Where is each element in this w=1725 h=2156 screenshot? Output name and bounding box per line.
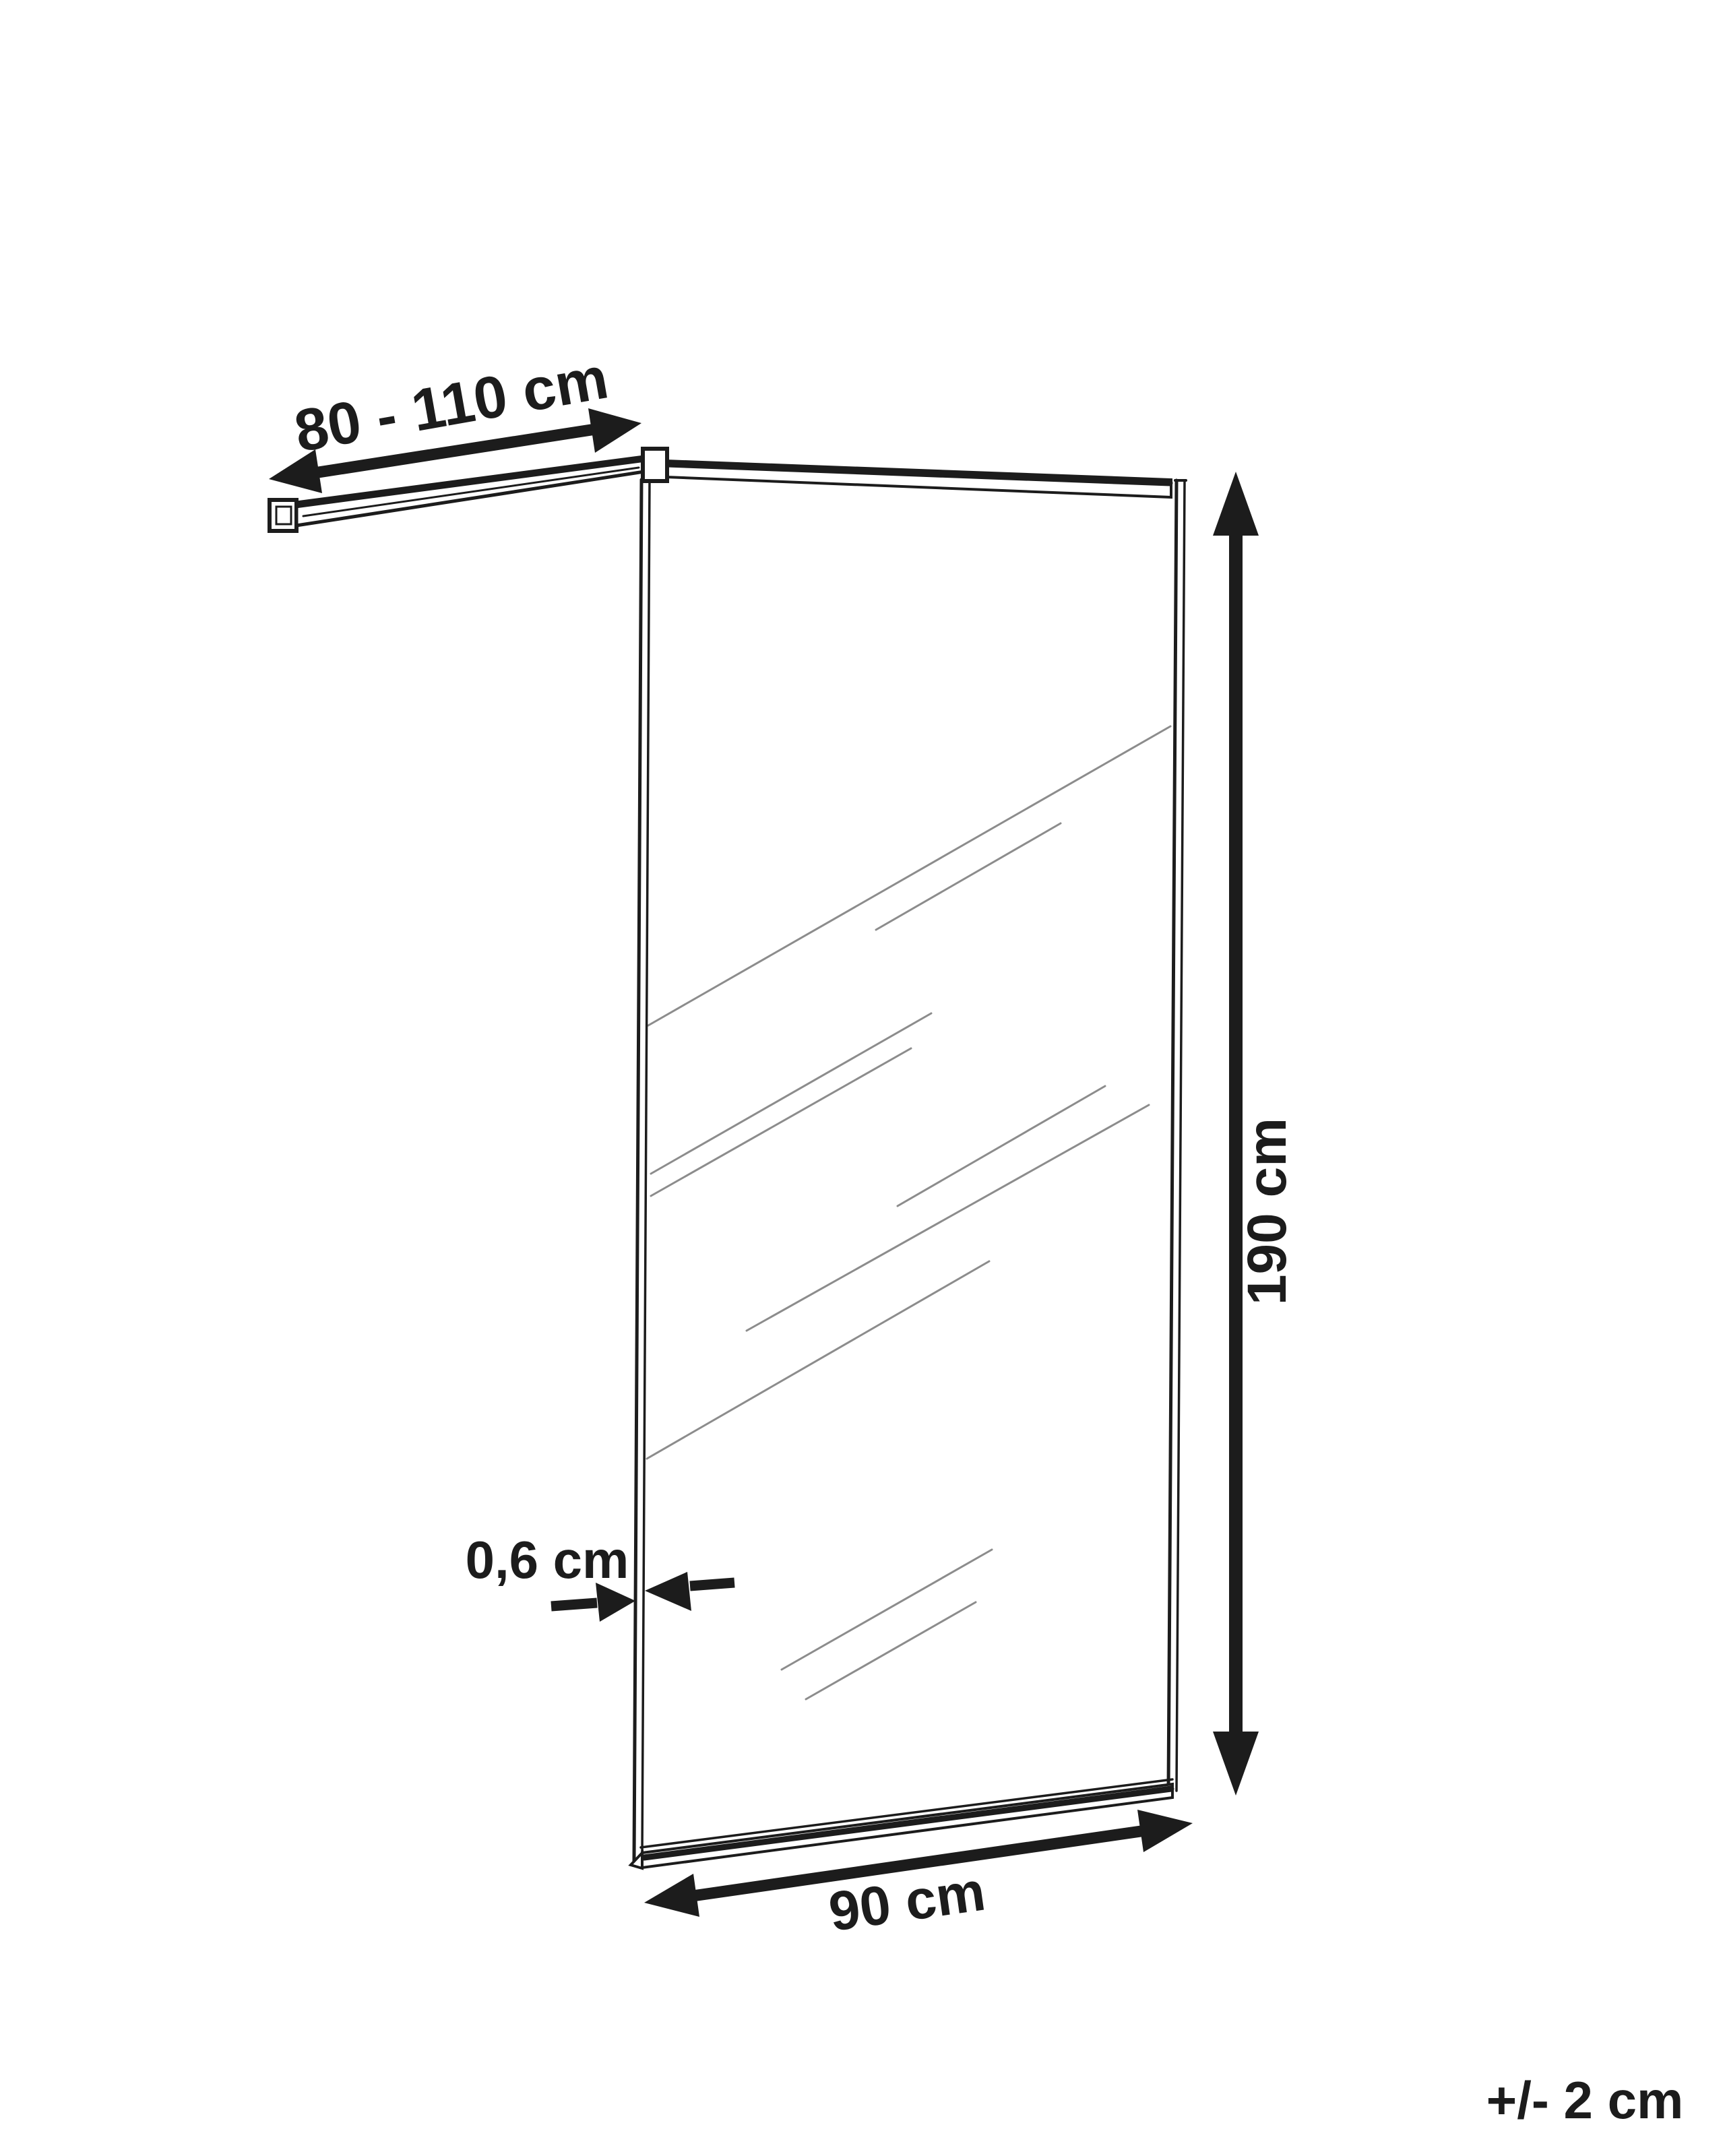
glass-edge-line [1177,480,1185,1791]
height-label: 190 cm [1236,1118,1298,1305]
glass-streak-line [648,726,1170,1025]
shower-screen-diagram: 80 - 110 cm 190 cm 0,6 cm 90 cm +/- 2 cm [0,0,1725,2156]
diagram-canvas: 80 - 110 cm 190 cm 0,6 cm 90 cm +/- 2 cm [0,0,1725,2156]
glass-edge-line [634,480,641,1861]
glass-streak-line [747,1105,1149,1331]
wall-bracket-outer [270,500,296,531]
arrowhead-up-icon [1213,472,1259,536]
glass-right-edge [1168,480,1186,1791]
glass-clamp [643,449,667,481]
glass-edge-line [642,480,650,1854]
bottom-rail [631,1779,1172,1868]
arrowhead-left-icon [644,1874,699,1917]
top-rail [666,461,1171,497]
tolerance-note: +/- 2 cm [1486,2070,1684,2130]
dim-line [690,1583,734,1586]
dim-glass-thickness: 0,6 cm [466,1530,734,1622]
dim-height: 190 cm [1213,472,1298,1796]
arrowhead-left-icon [645,1572,691,1611]
glass-left-edge [634,480,650,1861]
dim-line [551,1603,597,1606]
arrowhead-right-icon [1137,1810,1193,1852]
glass-streak-line [806,1602,976,1699]
glass-streak-line [651,1013,931,1174]
glass-thickness-label: 0,6 cm [466,1530,629,1589]
glass-reflection-streaks [647,726,1170,1699]
glass-streak-line [782,1550,992,1670]
wall-bracket [270,500,296,531]
glass-streak-line [876,823,1061,930]
arrowhead-right-icon [588,408,641,453]
glass-edge-line [1168,480,1177,1789]
glass-panel [631,461,1186,1868]
support-bar-inner-line [303,468,639,516]
arrowhead-down-icon [1213,1732,1259,1796]
glass-streak-line [651,1048,911,1196]
support-bar-assembly [270,449,667,531]
thickness-arrow-left [645,1572,734,1611]
bottom-rail-thick-edge [644,1789,1171,1858]
